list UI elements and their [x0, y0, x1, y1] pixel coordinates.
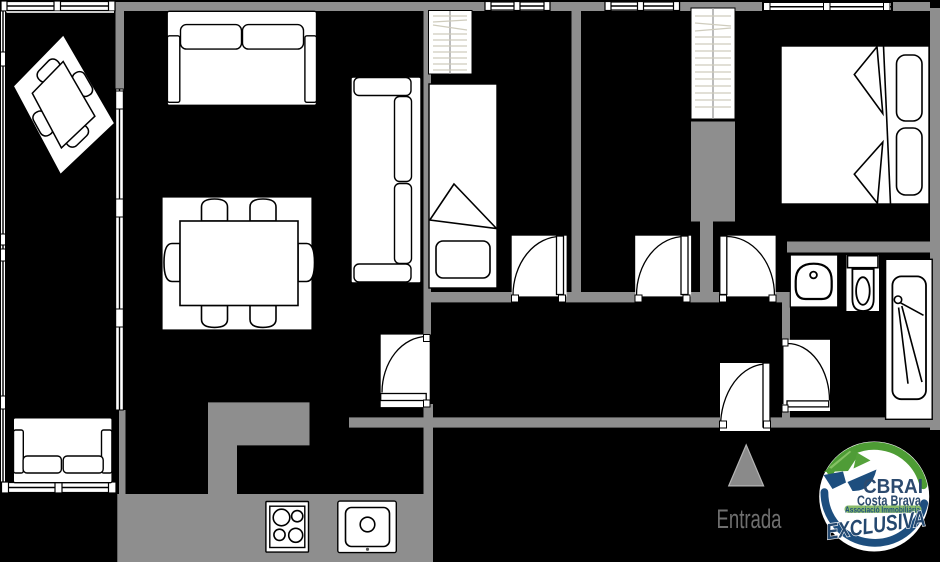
svg-text:Entrada: Entrada: [717, 504, 782, 534]
